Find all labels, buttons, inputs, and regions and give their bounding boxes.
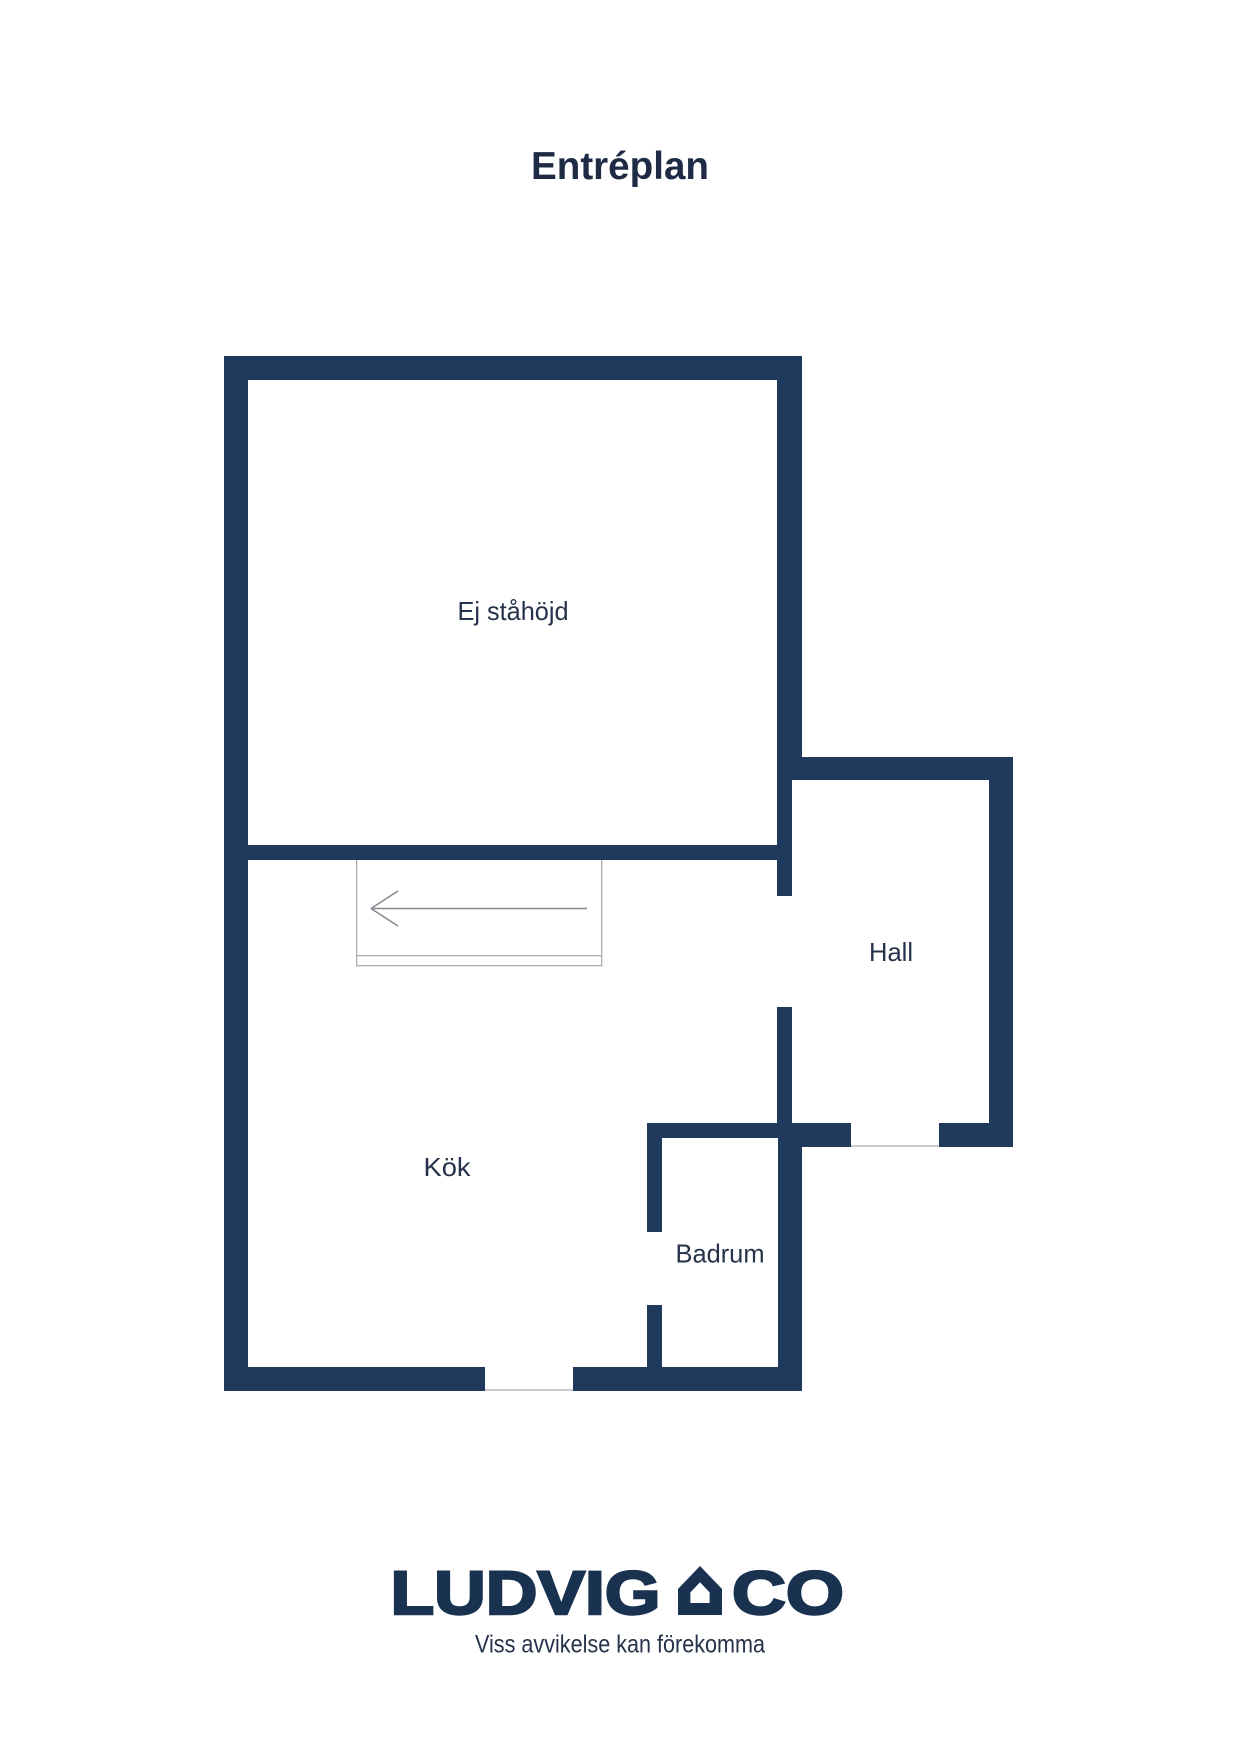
svg-text:LUDVIG: LUDVIG xyxy=(391,1559,661,1627)
svg-text:Ej ståhöjd: Ej ståhöjd xyxy=(458,596,569,626)
svg-text:Entréplan: Entréplan xyxy=(531,145,709,188)
svg-text:CO: CO xyxy=(732,1559,844,1627)
svg-text:Kök: Kök xyxy=(424,1152,472,1182)
svg-text:Badrum: Badrum xyxy=(676,1239,765,1269)
svg-text:Viss avvikelse kan förekomma: Viss avvikelse kan förekomma xyxy=(475,1631,765,1659)
svg-text:Hall: Hall xyxy=(869,937,913,967)
